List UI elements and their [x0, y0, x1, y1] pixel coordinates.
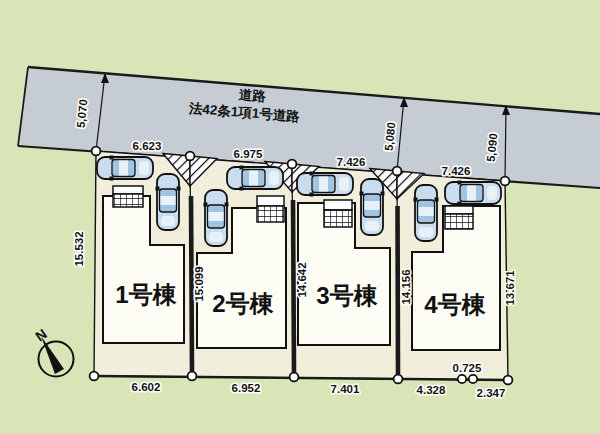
- bottom-width-label-3: 7.401: [331, 383, 360, 395]
- car-lot4-horizontal: [445, 181, 501, 206]
- fence-bar-1: [191, 196, 192, 372]
- frontage-label-2: 6.975: [234, 148, 263, 160]
- porch-4: [445, 206, 473, 229]
- building-label-4: 4号棟: [424, 291, 485, 318]
- building-label-1: 1号棟: [115, 281, 176, 308]
- porch-2: [257, 196, 284, 222]
- car-lot1-vertical: [156, 174, 181, 230]
- side-depth-label-2: 15.099: [193, 266, 205, 301]
- building-label-3: 3号棟: [316, 282, 377, 309]
- bottom-width-label-1: 6.602: [132, 381, 161, 393]
- bottom-jog-label: 0.725: [453, 362, 482, 374]
- fence-bar-2: [293, 200, 294, 373]
- building-label-2: 2号棟: [212, 290, 273, 317]
- fence-bar-3: [398, 206, 399, 375]
- site-plan: 道路 法42条1項1号道路 5,070 5,080 5,090 6.623 6.…: [0, 0, 600, 434]
- road-name-line1: 道路: [238, 87, 267, 104]
- site-plan-drawing: 道路 法42条1項1号道路 5,070 5,080 5,090 6.623 6.…: [0, 0, 600, 434]
- bottom-width-label-5: 2.347: [477, 387, 506, 399]
- frontage-label-4: 7.426: [442, 165, 471, 177]
- bottom-width-label-4: 4.328: [417, 384, 446, 396]
- car-lot2-horizontal: [227, 166, 283, 191]
- car-lot4-vertical: [414, 185, 439, 241]
- side-depth-label-5: 13.671: [504, 270, 516, 306]
- porch-3: [324, 200, 352, 227]
- porch-1: [113, 186, 143, 207]
- bottom-width-label-2: 6.952: [232, 382, 261, 394]
- frontage-label-3: 7.426: [337, 156, 366, 168]
- side-depth-label-1: 15.532: [73, 231, 85, 266]
- car-lot1-horizontal: [97, 156, 153, 181]
- car-lot2-vertical: [204, 190, 229, 246]
- side-depth-label-4: 14.156: [400, 269, 412, 304]
- frontage-label-1: 6.623: [133, 140, 162, 152]
- car-lot3-vertical: [360, 179, 385, 235]
- side-depth-label-3: 14.642: [296, 262, 308, 297]
- car-lot3-horizontal: [297, 172, 353, 197]
